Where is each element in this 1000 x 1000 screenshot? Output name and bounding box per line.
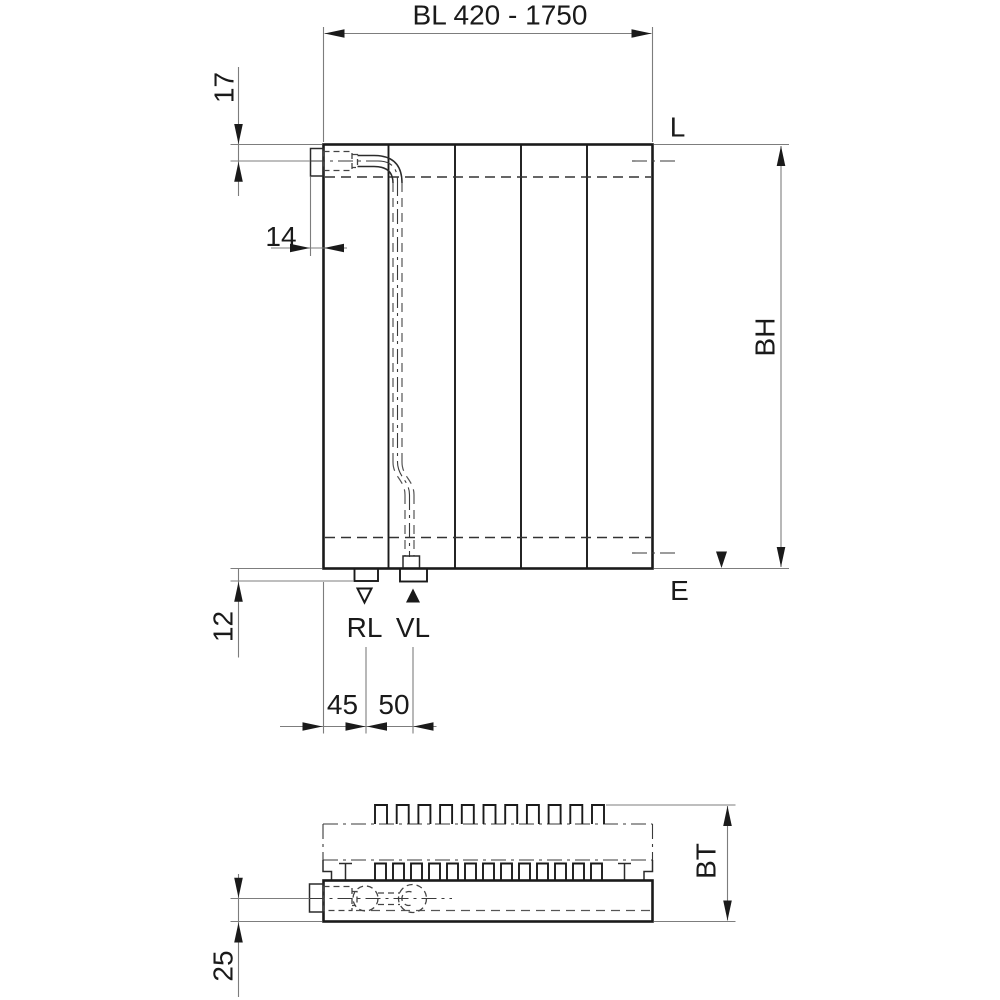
arrow-down-icon xyxy=(777,547,786,567)
connection-symbols: RL VL xyxy=(347,589,431,644)
dim-bh: BH xyxy=(654,145,789,569)
internal-riser-pipe xyxy=(393,181,420,569)
dim-25: 25 xyxy=(208,874,323,997)
vent-label: L xyxy=(670,112,686,143)
return-stub xyxy=(355,569,379,582)
radiator-body xyxy=(324,145,653,569)
wall-bracket-top xyxy=(311,149,324,177)
arrow-left-icon xyxy=(325,29,345,38)
convector-fins-bottom xyxy=(375,864,602,881)
arrow-left-icon xyxy=(414,722,434,731)
dim50-label: 50 xyxy=(378,689,409,720)
radiator-dimension-drawing: BL 420 - 1750 17 14 BH L E 12 RL VL xyxy=(0,0,1000,1000)
arrow-right-icon xyxy=(346,722,366,731)
drain-label: E xyxy=(670,575,689,606)
dim45-label: 45 xyxy=(327,689,358,720)
arrow-down-icon xyxy=(234,878,243,898)
convector-fins-top xyxy=(375,805,604,824)
dim14-label: 14 xyxy=(265,221,296,252)
dim12-label: 12 xyxy=(208,611,239,642)
dim12-lines xyxy=(231,569,355,658)
arrow-left-icon xyxy=(324,244,344,253)
arrow-up-icon xyxy=(234,582,243,602)
arrow-down-icon xyxy=(723,901,732,921)
dim17-lines xyxy=(231,67,323,196)
bt-dimension-label: BT xyxy=(691,843,722,879)
bottom-view xyxy=(310,805,653,922)
dim-12: 12 xyxy=(208,569,355,658)
arrow-up-icon xyxy=(723,806,732,826)
supply-label: VL xyxy=(396,612,430,643)
dim25-lines xyxy=(231,874,323,997)
arrow-up-icon xyxy=(234,162,243,182)
arrow-up-icon xyxy=(777,146,786,166)
arrow-down-icon xyxy=(234,124,243,144)
arrow-right-icon xyxy=(632,29,652,38)
riser-jog-walls xyxy=(393,462,414,495)
drain-level-marker-icon xyxy=(716,552,727,569)
front-view xyxy=(310,145,675,582)
return-flow-icon xyxy=(358,589,372,603)
front-panel xyxy=(324,881,653,922)
bl-dimension-label: BL 420 - 1750 xyxy=(413,0,588,31)
plan-connection xyxy=(310,884,453,913)
dim45-50-lines xyxy=(280,582,437,734)
dim-14: 14 xyxy=(265,177,347,256)
dim-17: 17 xyxy=(209,67,323,196)
dim25-label: 25 xyxy=(208,950,239,981)
dim-bl: BL 420 - 1750 xyxy=(324,0,653,142)
column-separators xyxy=(389,146,588,568)
supply-flow-icon xyxy=(406,589,420,603)
arrow-left-icon xyxy=(367,722,387,731)
supply-stub xyxy=(400,569,427,582)
arrow-right-icon xyxy=(303,722,323,731)
return-label: RL xyxy=(347,612,383,643)
dim-45-50: 45 50 xyxy=(280,582,437,734)
dim17-label: 17 xyxy=(209,72,240,103)
technical-drawing: BL 420 - 1750 17 14 BH L E 12 RL VL xyxy=(0,0,1000,1000)
pipe-collar xyxy=(403,556,420,569)
bl-dimension-lines xyxy=(324,27,653,142)
rear-section-centerline-box xyxy=(323,824,653,860)
arrow-up-icon xyxy=(234,923,243,943)
bh-dimension-label: BH xyxy=(750,318,781,357)
fin-end-ticks xyxy=(339,864,631,881)
